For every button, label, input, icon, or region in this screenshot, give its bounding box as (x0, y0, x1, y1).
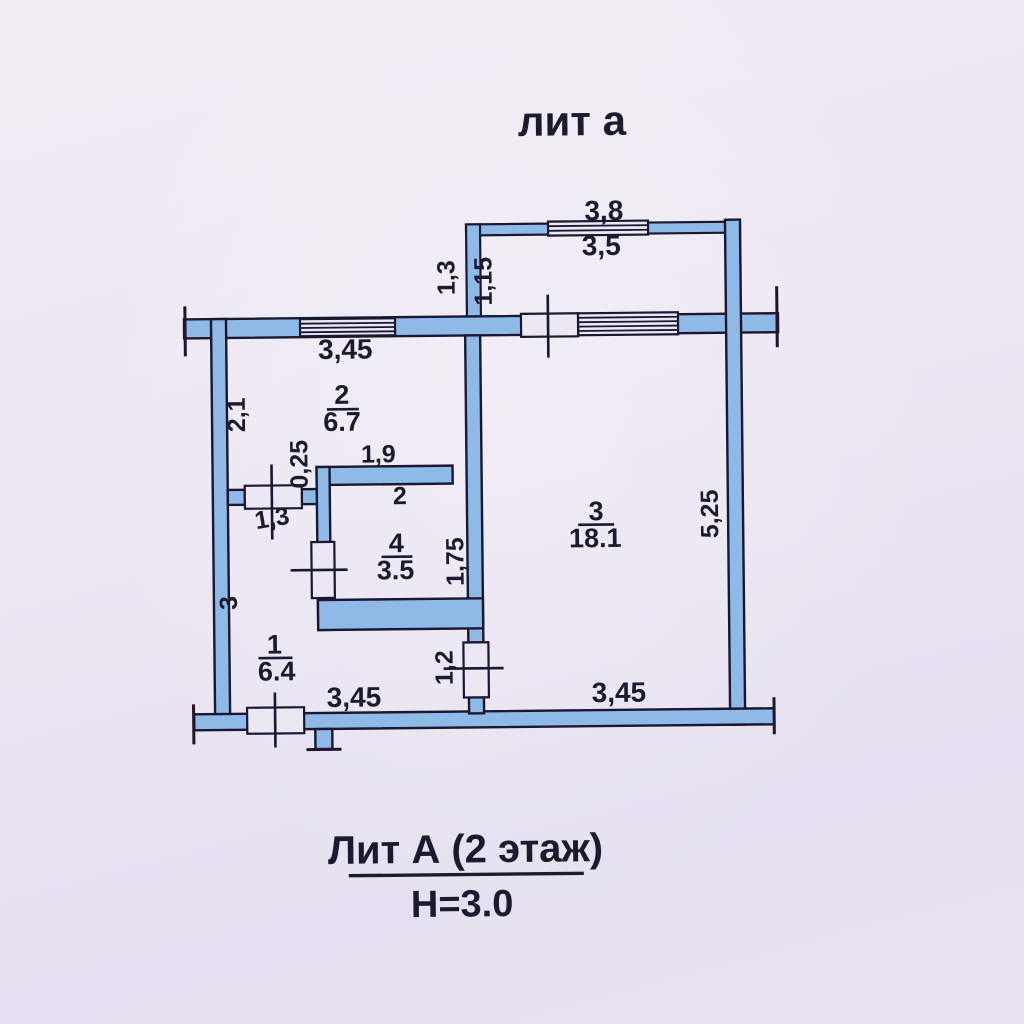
dim-room4-top-wall: 1,9 (361, 440, 396, 468)
room4-area: 3.5 (377, 555, 415, 585)
room1-label: 1 6.4 (257, 629, 295, 686)
room2-label: 2 6.7 (323, 380, 361, 437)
dim-room3-right-wall: 5,25 (696, 489, 725, 538)
dim-room2-door-width: 1,3 (253, 502, 292, 535)
room3-door-opening (463, 642, 489, 697)
room2-area: 6.7 (323, 407, 361, 437)
footer-title-block: Лит А (2 этаж) Н=3.0 (328, 826, 604, 927)
room4-number: 4 (389, 528, 404, 558)
entry-door-mark (275, 692, 276, 747)
partition-room1-room3-upper (465, 335, 483, 642)
dim-room3-door-width: 1,2 (430, 650, 458, 685)
dim-balcony-depth-inner: 1,15 (469, 257, 498, 306)
floor-plan-scan: лит а 3,8 3,5 1,3 1,15 3,45 2,1 2 6.7 0,… (0, 0, 1024, 1024)
sheet-title: лит а (518, 97, 627, 145)
room3-area: 18.1 (569, 523, 622, 554)
balcony-door-mark (548, 295, 549, 358)
room4-left-wall-upper (317, 467, 331, 544)
room3-window (578, 312, 678, 335)
dim-room2-left-wall: 2,1 (223, 397, 251, 432)
dim-room4-right-wall: 1,75 (441, 537, 470, 586)
dim-room2-window-wall: 3,45 (318, 333, 373, 365)
room1-area: 6.4 (258, 656, 296, 686)
footer-title: Лит А (2 этаж) (328, 826, 604, 873)
partition-room1-room3-lower-stub (469, 697, 484, 713)
room4-label: 4 3.5 (376, 528, 414, 585)
dim-balcony-outer: 3,8 (584, 195, 623, 226)
top-right-end-tick (777, 286, 778, 347)
room4-door-mark (291, 570, 348, 571)
bottom-stub-wall (315, 729, 332, 749)
top-left-end-tick (185, 306, 186, 356)
main-left-wall (211, 319, 230, 729)
dim-balcony-depth-outer: 1,3 (432, 260, 460, 295)
dim-room1-left-wall: 3 (215, 596, 243, 610)
dim-pier-width: 0,25 (285, 440, 314, 489)
partition-room2-left-pier (228, 490, 245, 505)
room4-bottom-wall (318, 598, 483, 630)
footer-underline (349, 873, 584, 875)
dim-room4-top-inner: 2 (393, 482, 407, 510)
dim-balcony-inner: 3,5 (582, 230, 621, 261)
dim-bottom-wall-left: 3,45 (327, 681, 382, 713)
room3-number: 3 (588, 496, 603, 526)
floor-plan-drawing: лит а 3,8 3,5 1,3 1,15 3,45 2,1 2 6.7 0,… (0, 0, 1024, 1024)
room2-number: 2 (334, 380, 349, 410)
dim-bottom-wall-right: 3,45 (591, 677, 646, 709)
footer-height-note: Н=3.0 (411, 883, 514, 926)
room4-top-wall (317, 466, 453, 485)
balcony-door-opening (521, 313, 578, 337)
room3-label: 3 18.1 (569, 496, 622, 554)
room1-number: 1 (267, 629, 282, 659)
main-right-wall (725, 220, 745, 725)
